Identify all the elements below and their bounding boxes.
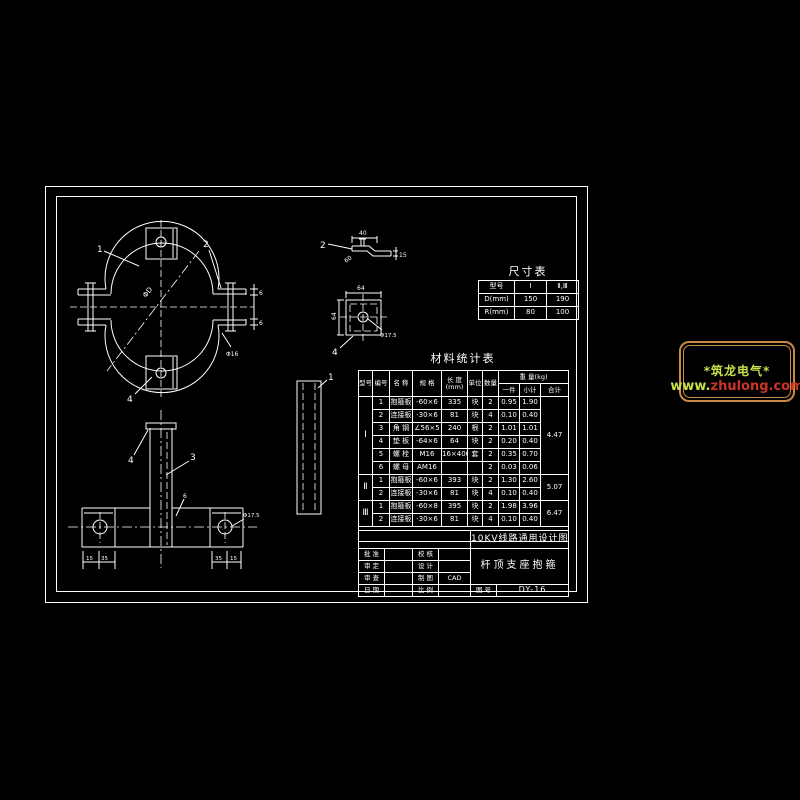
table-row: 2 连接板 -30×6 81 块 4 0.10 0.40: [359, 410, 569, 423]
mat-cell: 4: [483, 488, 499, 501]
mat-cell: 0.10: [499, 514, 520, 527]
mat-cell: 块: [468, 501, 483, 514]
mat-cell: 块: [468, 488, 483, 501]
mat-cell: 1.98: [499, 501, 520, 514]
field-value: [385, 573, 413, 585]
col-header-total: 合计: [541, 384, 569, 397]
mat-cell: 块: [468, 397, 483, 410]
drawing-no-label: 图 号: [471, 585, 497, 597]
zhulong-logo: *筑龙电气* www.zhulong.com: [679, 341, 795, 402]
part-label-2: 2: [320, 241, 326, 251]
type-cell: Ⅰ: [359, 397, 373, 475]
hoop-plan-figure: 1 2 4 ΦD Φ16 6 6: [70, 220, 263, 405]
mat-cell: 1.01: [520, 423, 541, 436]
hole-dia-label: Φ17.5: [380, 333, 397, 339]
col-header-name: 名 称: [390, 371, 413, 397]
mat-cell: 64: [442, 436, 468, 449]
size-cell: 190: [547, 294, 579, 307]
mat-cell: 2.60: [520, 475, 541, 488]
mat-cell: 2: [483, 423, 499, 436]
mat-cell: 2: [373, 514, 390, 527]
mat-cell: 抱箍板: [390, 397, 413, 410]
mat-cell: -60×8: [413, 501, 442, 514]
pad-plate-figure: 64 64 Φ17.5 4: [331, 285, 397, 358]
mat-cell: 0.10: [499, 488, 520, 501]
field-value: CAD: [439, 573, 471, 585]
thickness-dim: 6: [259, 290, 263, 297]
part-label-4: 4: [332, 348, 338, 358]
mat-cell: -30×6: [413, 514, 442, 527]
mat-cell: 块: [468, 514, 483, 527]
mat-cell: 393: [442, 475, 468, 488]
mat-cell: 螺 栓: [390, 449, 413, 462]
mat-cell: 连接板: [390, 410, 413, 423]
type-cell: Ⅱ: [359, 475, 373, 501]
table-row: Ⅱ 1 抱箍板 -60×6 393 块 2 1.30 2.60 5.07: [359, 475, 569, 488]
size-table: 型号 Ⅰ Ⅱ,Ⅲ D(mm) 150 190 R(mm) 80 100: [478, 280, 579, 320]
mat-cell: 1.01: [499, 423, 520, 436]
mat-cell: 81: [442, 514, 468, 527]
field-label: 校 核: [413, 549, 439, 561]
strap-development-figure: 1: [297, 373, 334, 514]
mat-cell: 抱箍板: [390, 501, 413, 514]
table-row: 2 连接板 -30×6 81 块 4 0.10 0.40: [359, 488, 569, 501]
thickness-label: 6: [183, 493, 187, 500]
mat-cell: -60×6: [413, 397, 442, 410]
mat-cell: 2: [483, 449, 499, 462]
dim-label: 40: [359, 230, 367, 237]
total-cell: 6.47: [541, 501, 569, 527]
field-value: [385, 561, 413, 573]
cad-drawing-canvas: 1 2 4 ΦD Φ16 6 6 4 3: [0, 0, 800, 800]
mat-cell: 4: [483, 410, 499, 423]
mat-cell: 1.30: [499, 475, 520, 488]
dim-label: 15: [399, 252, 407, 259]
mat-cell: 0.40: [520, 436, 541, 449]
col-header-length: 长 度 (mm): [442, 371, 468, 397]
dim-label: 15: [86, 556, 93, 562]
thickness-dim: 6: [259, 320, 263, 327]
bent-plate-figure: 2 40 60 15: [320, 230, 407, 265]
size-row-label: D(mm): [479, 294, 515, 307]
url-www: www.: [670, 379, 710, 394]
material-table: 型号 编号 名 称 规 格 长 度 (mm) 单位 数量 重 量(kg) 一件 …: [358, 370, 569, 542]
part-label-4: 4: [128, 456, 134, 466]
mat-cell: 0.06: [520, 462, 541, 475]
mat-cell: 螺 母: [390, 462, 413, 475]
mat-cell: 块: [468, 410, 483, 423]
mat-cell: -60×6: [413, 475, 442, 488]
col-header-weight: 重 量(kg): [499, 371, 569, 384]
dim-label: 35: [101, 556, 108, 562]
field-label: 设 计: [413, 561, 439, 573]
hole-dia-label: Φ17.5: [243, 513, 260, 519]
zhulong-logo-inner-border: *筑龙电气* www.zhulong.com: [683, 345, 791, 398]
mat-cell: 395: [442, 501, 468, 514]
table-row: 4 垫 板 -64×6 64 块 2 0.20 0.40: [359, 436, 569, 449]
field-value: [385, 549, 413, 561]
field-label: 批 准: [359, 549, 385, 561]
size-header-II-III: Ⅱ,Ⅲ: [547, 281, 579, 294]
col-header-sub: 小计: [520, 384, 541, 397]
mat-cell: 连接板: [390, 514, 413, 527]
size-header-I: Ⅰ: [515, 281, 547, 294]
mat-cell: 1: [373, 397, 390, 410]
total-cell: 4.47: [541, 397, 569, 475]
mat-cell: -64×6: [413, 436, 442, 449]
mat-cell: 335: [442, 397, 468, 410]
col-header-qty: 数量: [483, 371, 499, 397]
mat-cell: 3: [373, 423, 390, 436]
mat-cell: 垫 板: [390, 436, 413, 449]
project-title: 10KV线路通用设计图: [471, 531, 569, 549]
part-label-4: 4: [127, 395, 133, 405]
mat-cell: 2: [373, 488, 390, 501]
mat-cell: 6: [373, 462, 390, 475]
mat-cell: 2: [483, 501, 499, 514]
col-header-type: 型号: [359, 371, 373, 397]
field-value: [439, 561, 471, 573]
mat-cell: 0.35: [499, 449, 520, 462]
mat-cell: 块: [468, 475, 483, 488]
col-header-per: 一件: [499, 384, 520, 397]
size-table-title: 尺寸表: [478, 263, 578, 279]
mat-cell: 81: [442, 488, 468, 501]
mat-cell: -30×6: [413, 410, 442, 423]
mat-cell: 0.40: [520, 410, 541, 423]
dim-label: 15: [230, 556, 237, 562]
diameter-label: ΦD: [141, 286, 154, 300]
url-domain: zhulong.com: [711, 379, 800, 394]
length-unit: (mm): [442, 384, 467, 391]
mat-cell: 抱箍板: [390, 475, 413, 488]
zhulong-brand-text: *筑龙电气*: [704, 362, 771, 379]
mat-cell: ∠56×5: [413, 423, 442, 436]
col-header-no: 编号: [373, 371, 390, 397]
mat-cell: 2: [483, 397, 499, 410]
field-value: [439, 549, 471, 561]
size-cell: 100: [547, 307, 579, 320]
part-label-1: 1: [328, 373, 334, 383]
mat-cell: 2: [483, 462, 499, 475]
table-row: 5 螺 栓 M16 16×400 套 2 0.35 0.70: [359, 449, 569, 462]
table-row: 6 螺 母 AM16 2 0.03 0.06: [359, 462, 569, 475]
mat-cell: [442, 462, 468, 475]
mat-cell: 角 钢: [390, 423, 413, 436]
mat-cell: [468, 462, 483, 475]
drawing-title: 杆顶支座抱箍: [471, 549, 569, 585]
mat-cell: 0.70: [520, 449, 541, 462]
mat-cell: 3.96: [520, 501, 541, 514]
col-header-unit: 单位: [468, 371, 483, 397]
mat-cell: 1: [373, 501, 390, 514]
table-row: Ⅰ 1 抱箍板 -60×6 335 块 2 0.95 1.90 4.47: [359, 397, 569, 410]
total-cell: 5.07: [541, 475, 569, 501]
mat-cell: AM16: [413, 462, 442, 475]
mat-cell: 4: [483, 514, 499, 527]
mat-cell: 根: [468, 423, 483, 436]
part-label-2: 2: [203, 240, 209, 250]
mat-cell: 0.10: [499, 410, 520, 423]
mat-cell: 0.40: [520, 488, 541, 501]
mat-cell: 0.03: [499, 462, 520, 475]
mat-cell: 2: [373, 410, 390, 423]
mat-cell: 1.90: [520, 397, 541, 410]
dim-label: 64: [357, 285, 365, 292]
title-block: 10KV线路通用设计图 批 准 校 核 杆顶支座抱箍 审 定 设 计 审 查 制…: [358, 530, 569, 597]
field-label: 比 例: [413, 585, 439, 597]
table-row: 2 连接板 -30×6 81 块 4 0.10 0.40: [359, 514, 569, 527]
blank-cell: [359, 531, 471, 549]
drawing-no-value: DY-16: [497, 585, 569, 597]
bolt-label: Φ16: [226, 351, 239, 358]
bracket-figure: 4 3 6 Φ17.5 15 35 35 15: [68, 410, 260, 569]
mat-cell: 1: [373, 475, 390, 488]
size-cell: 150: [515, 294, 547, 307]
mat-cell: 连接板: [390, 488, 413, 501]
dim-label: 64: [331, 312, 338, 320]
mat-cell: 0.95: [499, 397, 520, 410]
mat-cell: 0.20: [499, 436, 520, 449]
mat-cell: 240: [442, 423, 468, 436]
mat-cell: 5: [373, 449, 390, 462]
field-label: 制 图: [413, 573, 439, 585]
size-row-label: R(mm): [479, 307, 515, 320]
size-cell: 80: [515, 307, 547, 320]
size-header-type: 型号: [479, 281, 515, 294]
mat-cell: 4: [373, 436, 390, 449]
table-row: Ⅲ 1 抱箍板 -60×8 395 块 2 1.98 3.96 6.47: [359, 501, 569, 514]
field-label: 审 查: [359, 573, 385, 585]
dim-label: 60: [343, 254, 353, 264]
mat-cell: 81: [442, 410, 468, 423]
type-cell: Ⅲ: [359, 501, 373, 527]
zhulong-url: www.zhulong.com: [670, 379, 800, 394]
table-row: 3 角 钢 ∠56×5 240 根 2 1.01 1.01: [359, 423, 569, 436]
dim-label: 35: [215, 556, 222, 562]
mat-cell: -30×6: [413, 488, 442, 501]
field-value: [439, 585, 471, 597]
part-label-1: 1: [97, 245, 103, 255]
mat-cell: 16×400: [442, 449, 468, 462]
field-label: 日 期: [359, 585, 385, 597]
field-label: 审 定: [359, 561, 385, 573]
mat-cell: 块: [468, 436, 483, 449]
part-label-3: 3: [190, 453, 196, 463]
field-value: [385, 585, 413, 597]
mat-cell: 2: [483, 436, 499, 449]
mat-cell: 2: [483, 475, 499, 488]
material-table-title: 材料统计表: [358, 350, 568, 366]
mat-cell: M16: [413, 449, 442, 462]
mat-cell: 套: [468, 449, 483, 462]
mat-cell: 0.40: [520, 514, 541, 527]
col-header-spec: 规 格: [413, 371, 442, 397]
